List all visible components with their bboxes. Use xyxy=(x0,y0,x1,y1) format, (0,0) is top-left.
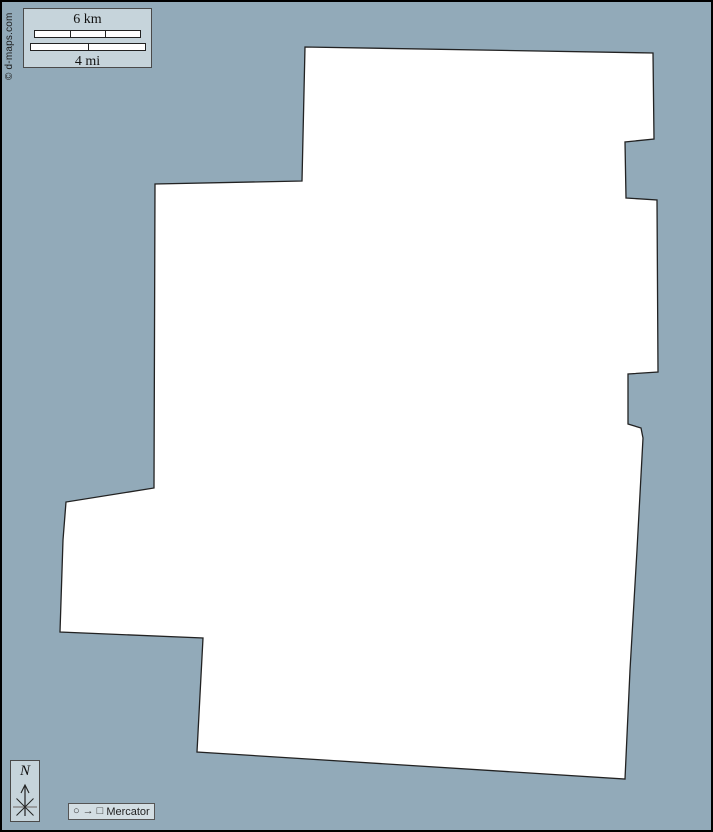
projection-label: Mercator xyxy=(106,806,149,818)
scale-km-label: 6 km xyxy=(24,11,151,28)
scale-tick xyxy=(70,31,71,37)
map-canvas: © d-maps.com 6 km 4 mi N ○ → □ Mercator xyxy=(0,0,713,832)
square-icon: □ xyxy=(97,804,104,819)
north-label: N xyxy=(11,762,39,780)
copyright-text: © d-maps.com xyxy=(4,12,15,80)
mi-scale-bar xyxy=(30,43,146,51)
scale-box: 6 km 4 mi xyxy=(23,8,152,68)
arrow-icon: → xyxy=(83,804,94,819)
blank-map xyxy=(0,0,713,832)
scale-tick xyxy=(105,31,106,37)
km-scale-bar xyxy=(34,30,141,38)
compass-box: N xyxy=(10,760,40,822)
projection-badge: ○ → □ Mercator xyxy=(68,803,155,820)
map-outline-polygon xyxy=(60,47,658,779)
compass-arrow-icon xyxy=(12,780,38,818)
scale-tick xyxy=(88,44,89,50)
scale-mi-label: 4 mi xyxy=(24,53,151,70)
circle-icon: ○ xyxy=(73,804,80,819)
